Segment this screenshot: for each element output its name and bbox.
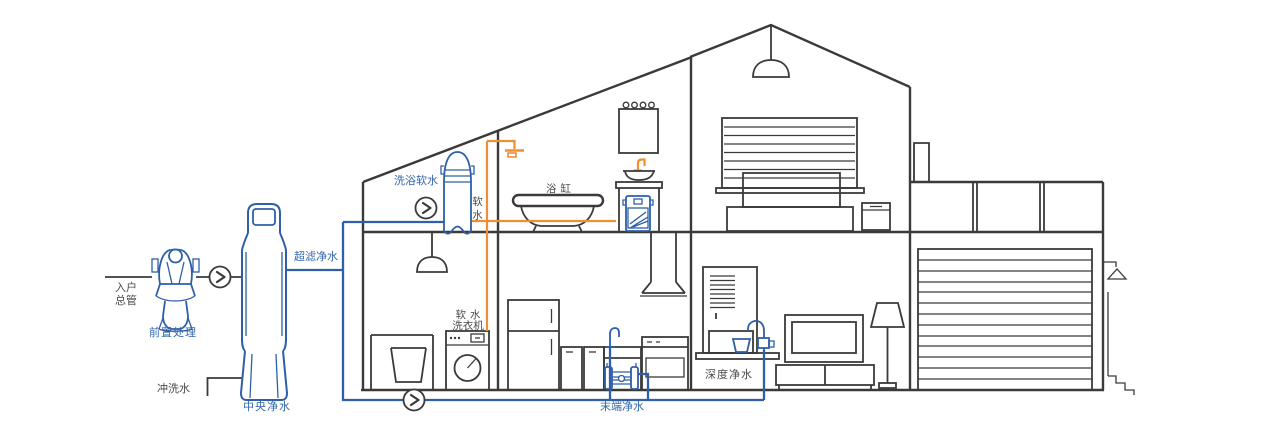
water-system-diagram: 入户 总管 前置处理 中央净水 冲洗水 超滤净水 洗浴软水 软水 浴缸 软水 洗… bbox=[0, 0, 1280, 434]
window-blinds bbox=[716, 118, 864, 193]
bedroom bbox=[716, 26, 890, 231]
bed bbox=[727, 173, 853, 231]
label-main-inlet: 入户 总管 bbox=[115, 282, 137, 308]
vanity-faucet-icon bbox=[634, 160, 645, 171]
label-flush-water: 冲洗水 bbox=[157, 383, 190, 396]
under-sink-heater bbox=[623, 196, 653, 231]
kitchen-cabinet bbox=[561, 347, 582, 390]
kitchen bbox=[508, 233, 688, 390]
laundry-sink bbox=[371, 335, 433, 389]
garage bbox=[911, 143, 1134, 395]
central-purifier-tank bbox=[241, 204, 287, 400]
label-central-purifier: 中央净水 bbox=[243, 401, 291, 414]
refrigerator bbox=[508, 300, 559, 390]
garage-door bbox=[918, 249, 1092, 390]
bathtub bbox=[513, 195, 603, 232]
label-terminal-purifier: 末端净水 bbox=[600, 401, 644, 414]
drinking-faucet-icon bbox=[748, 321, 774, 350]
pipe-flush-water bbox=[208, 378, 243, 396]
mirror-lights-icon bbox=[623, 102, 654, 108]
label-main-inlet-line1: 入户 bbox=[115, 282, 137, 295]
flow-arrow-icon bbox=[416, 198, 437, 219]
label-bathtub: 浴缸 bbox=[546, 183, 575, 196]
outdoor-steps bbox=[1108, 376, 1134, 395]
pipe-purified-blue bbox=[286, 222, 764, 400]
label-main-inlet-line2: 总管 bbox=[115, 295, 137, 308]
dishwasher bbox=[584, 347, 604, 390]
label-bath-softener: 洗浴软水 bbox=[394, 175, 438, 188]
label-soft-washer-line2: 洗衣机 bbox=[452, 321, 484, 332]
range-hood bbox=[640, 233, 687, 296]
roof-vent-box bbox=[914, 143, 929, 182]
label-soft-washer: 软水 洗衣机 bbox=[452, 310, 484, 332]
water-cup-icon bbox=[733, 339, 750, 352]
tv bbox=[785, 315, 863, 362]
ceiling-lamp bbox=[417, 232, 447, 272]
label-deep-purifier: 深度净水 bbox=[705, 369, 753, 382]
pendant-lamp bbox=[753, 26, 789, 77]
shower-icon bbox=[505, 151, 524, 158]
outdoor-wall-lamp-icon bbox=[1104, 262, 1126, 279]
label-soft-water: 软水 bbox=[470, 196, 483, 223]
label-pre-treatment: 前置处理 bbox=[149, 327, 197, 340]
kitchen-faucet-icon bbox=[606, 328, 619, 347]
flow-arrow-icon bbox=[404, 390, 425, 411]
label-ultrafiltration: 超滤净水 bbox=[294, 251, 338, 264]
nightstand bbox=[862, 203, 890, 230]
vanity-mirror bbox=[619, 102, 658, 153]
flow-arrow-icon bbox=[210, 267, 231, 288]
tv-stand bbox=[776, 365, 874, 389]
washing-machine bbox=[446, 331, 489, 390]
bathroom bbox=[513, 102, 658, 232]
diagram-linework bbox=[0, 0, 1280, 434]
floor-lamp bbox=[871, 303, 904, 388]
pre-filter-device bbox=[152, 249, 199, 331]
